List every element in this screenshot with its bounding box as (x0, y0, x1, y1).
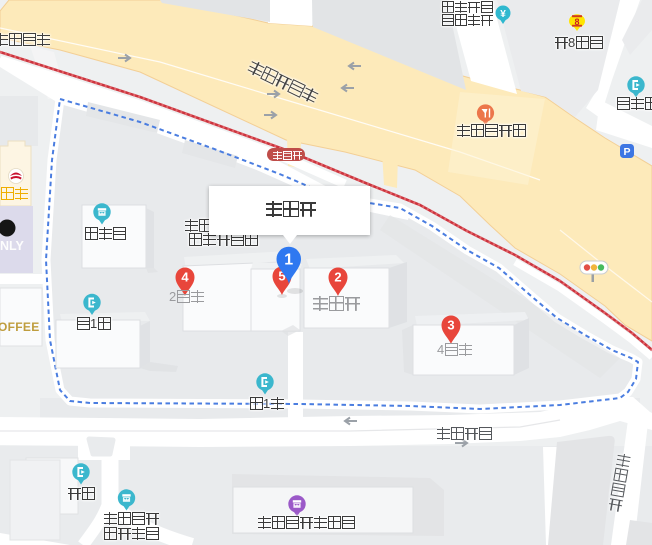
svg-text:1: 1 (284, 252, 293, 269)
svg-text:4: 4 (181, 270, 189, 285)
svg-text:3: 3 (447, 318, 454, 333)
svg-text:¥: ¥ (500, 9, 506, 20)
svg-text:2: 2 (334, 270, 341, 285)
svg-text:P: P (623, 146, 630, 158)
svg-text:8: 8 (574, 17, 579, 27)
